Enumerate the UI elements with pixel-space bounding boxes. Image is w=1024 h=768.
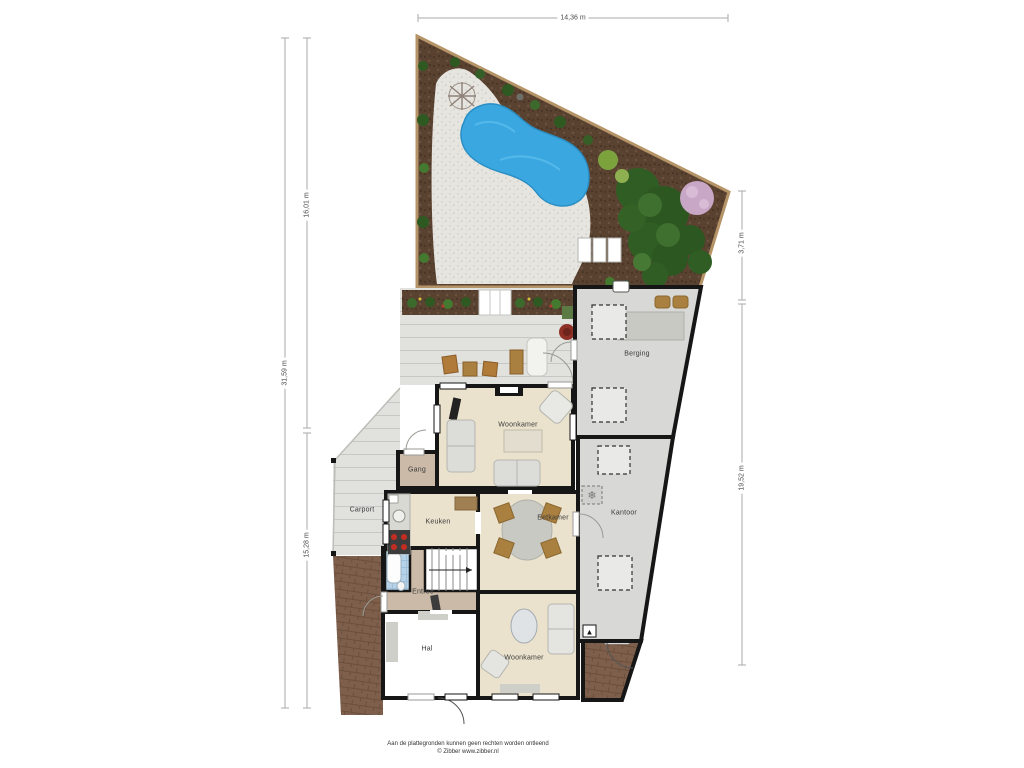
doormat (500, 684, 540, 693)
dimension-top: 14,36 m (557, 15, 588, 22)
deck-terrace (400, 288, 575, 385)
deck-steps (479, 290, 511, 315)
room-gang (398, 452, 437, 488)
heater-icon (511, 609, 537, 643)
stove-icon (388, 530, 410, 554)
skylight (592, 305, 626, 339)
ventilation-icon: ❄ (587, 490, 596, 502)
footer-disclaimer: Aan de plattegronden kunnen geen rechten… (318, 740, 618, 748)
dimension-left-inner-upper: 16,01 m (304, 189, 311, 220)
garden-steps (578, 238, 621, 262)
patio-right (583, 638, 641, 700)
skylight (598, 446, 630, 474)
paving-left (333, 556, 383, 715)
skylight (592, 388, 626, 422)
svg-text:▲: ▲ (586, 628, 594, 637)
floorplan-drawing: ❄ (0, 0, 1024, 768)
dimension-left-outer: 31,59 m (282, 357, 289, 388)
workbench-icon (618, 312, 684, 340)
bathroom (385, 550, 410, 591)
garden-area (417, 36, 729, 288)
toilet-icon (397, 582, 405, 591)
diningroom-furniture (494, 500, 562, 560)
footer-copyright: © Zibber www.zibber.nl (318, 748, 618, 756)
floorplan-page: ❄ (0, 0, 1024, 768)
dimension-right-upper: 3,71 m (739, 229, 746, 256)
dimension-left-inner-lower: 15,28 m (304, 529, 311, 560)
bathtub-icon (387, 553, 401, 583)
blossom-tree-icon (680, 181, 714, 215)
skylight (598, 556, 632, 590)
dimension-right-lower: 19,52 m (739, 462, 746, 493)
lounger-icon (527, 338, 547, 376)
entrance-marker: ▲ (583, 625, 596, 637)
coffee-table-icon (504, 430, 542, 452)
sink-icon (393, 510, 405, 522)
